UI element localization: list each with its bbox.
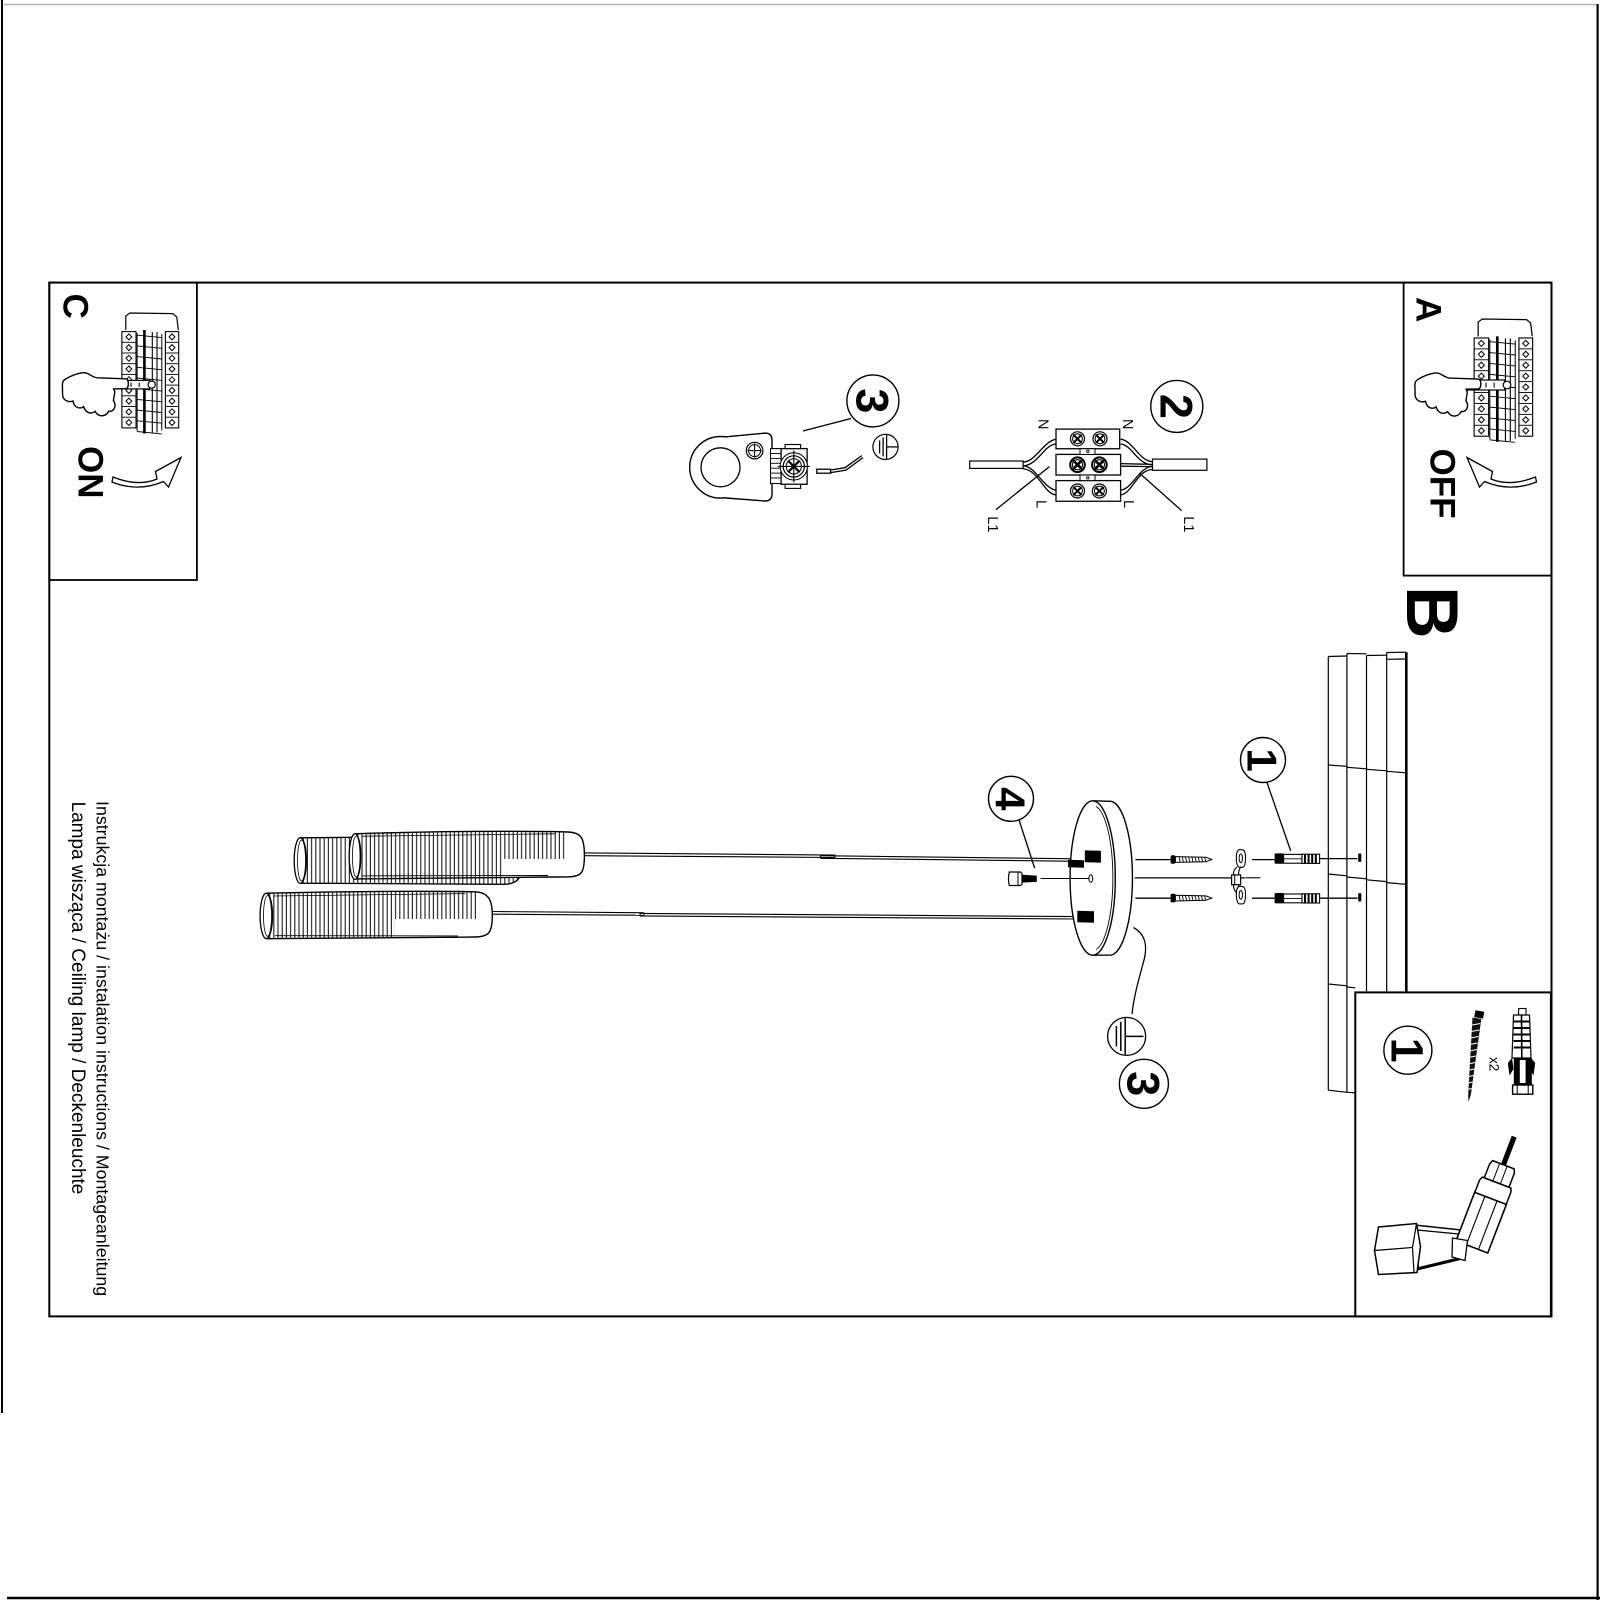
svg-text:L: L <box>1033 500 1049 508</box>
svg-text:L: L <box>1120 500 1136 508</box>
svg-text:ON: ON <box>71 446 110 499</box>
svg-text:L1: L1 <box>1180 516 1196 532</box>
svg-text:x2: x2 <box>1487 1057 1502 1071</box>
svg-text:OFF: OFF <box>1423 449 1462 519</box>
svg-text:4: 4 <box>987 787 1034 811</box>
svg-text:1: 1 <box>1382 1038 1433 1063</box>
svg-text:A: A <box>1409 297 1448 322</box>
svg-text:N: N <box>1035 419 1051 429</box>
svg-text:3: 3 <box>1118 1071 1169 1096</box>
svg-text:Instrukcja montażu / instalati: Instrukcja montażu / instalation instruc… <box>93 801 113 1296</box>
svg-text:Lampa wisząca / Ceiling lamp /: Lampa wisząca / Ceiling lamp / Deckenleu… <box>67 802 88 1195</box>
svg-text:3: 3 <box>847 388 898 413</box>
svg-text:N: N <box>1119 419 1135 429</box>
svg-text:2: 2 <box>1150 394 1201 419</box>
svg-text:C: C <box>56 294 95 319</box>
svg-text:B: B <box>1391 586 1472 639</box>
svg-text:L1: L1 <box>984 516 1000 532</box>
svg-text:1: 1 <box>1239 748 1286 771</box>
